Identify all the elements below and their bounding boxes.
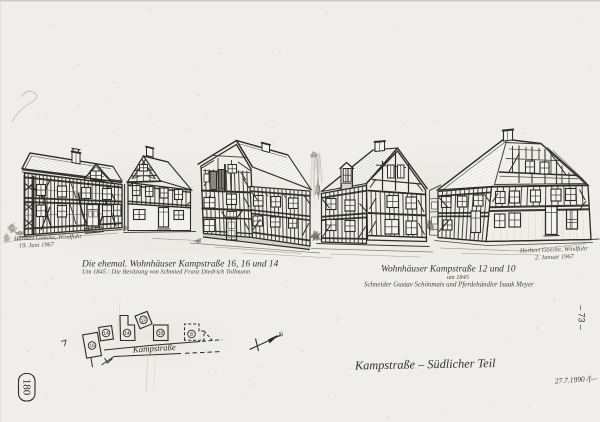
- svg-text:Kampstraße – Südlicher Teil: Kampstraße – Südlicher Teil: [354, 356, 496, 372]
- svg-text:2. Januar 1967: 2. Januar 1967: [535, 253, 575, 261]
- svg-text:19. Juni 1967: 19. Juni 1967: [19, 241, 55, 249]
- svg-text:14: 14: [124, 331, 130, 337]
- svg-text:10: 10: [158, 331, 164, 337]
- svg-text:8: 8: [190, 332, 193, 338]
- svg-text:Um 1845 : Die Besitzung von S: Um 1845 : Die Besitzung von Schmied Fran…: [82, 269, 250, 276]
- svg-text:Wohnhäuser Kampstraße 12 und: Wohnhäuser Kampstraße 12 und 10: [381, 264, 516, 275]
- svg-text:um 1845: um 1845: [447, 274, 469, 281]
- svg-text:Schneider Gustav Schönmais und: Schneider Gustav Schönmais und Pferdehän…: [364, 282, 534, 289]
- svg-text:14: 14: [103, 330, 110, 337]
- svg-text:180: 180: [21, 379, 33, 396]
- svg-text:– 73 –: – 73 –: [577, 305, 587, 330]
